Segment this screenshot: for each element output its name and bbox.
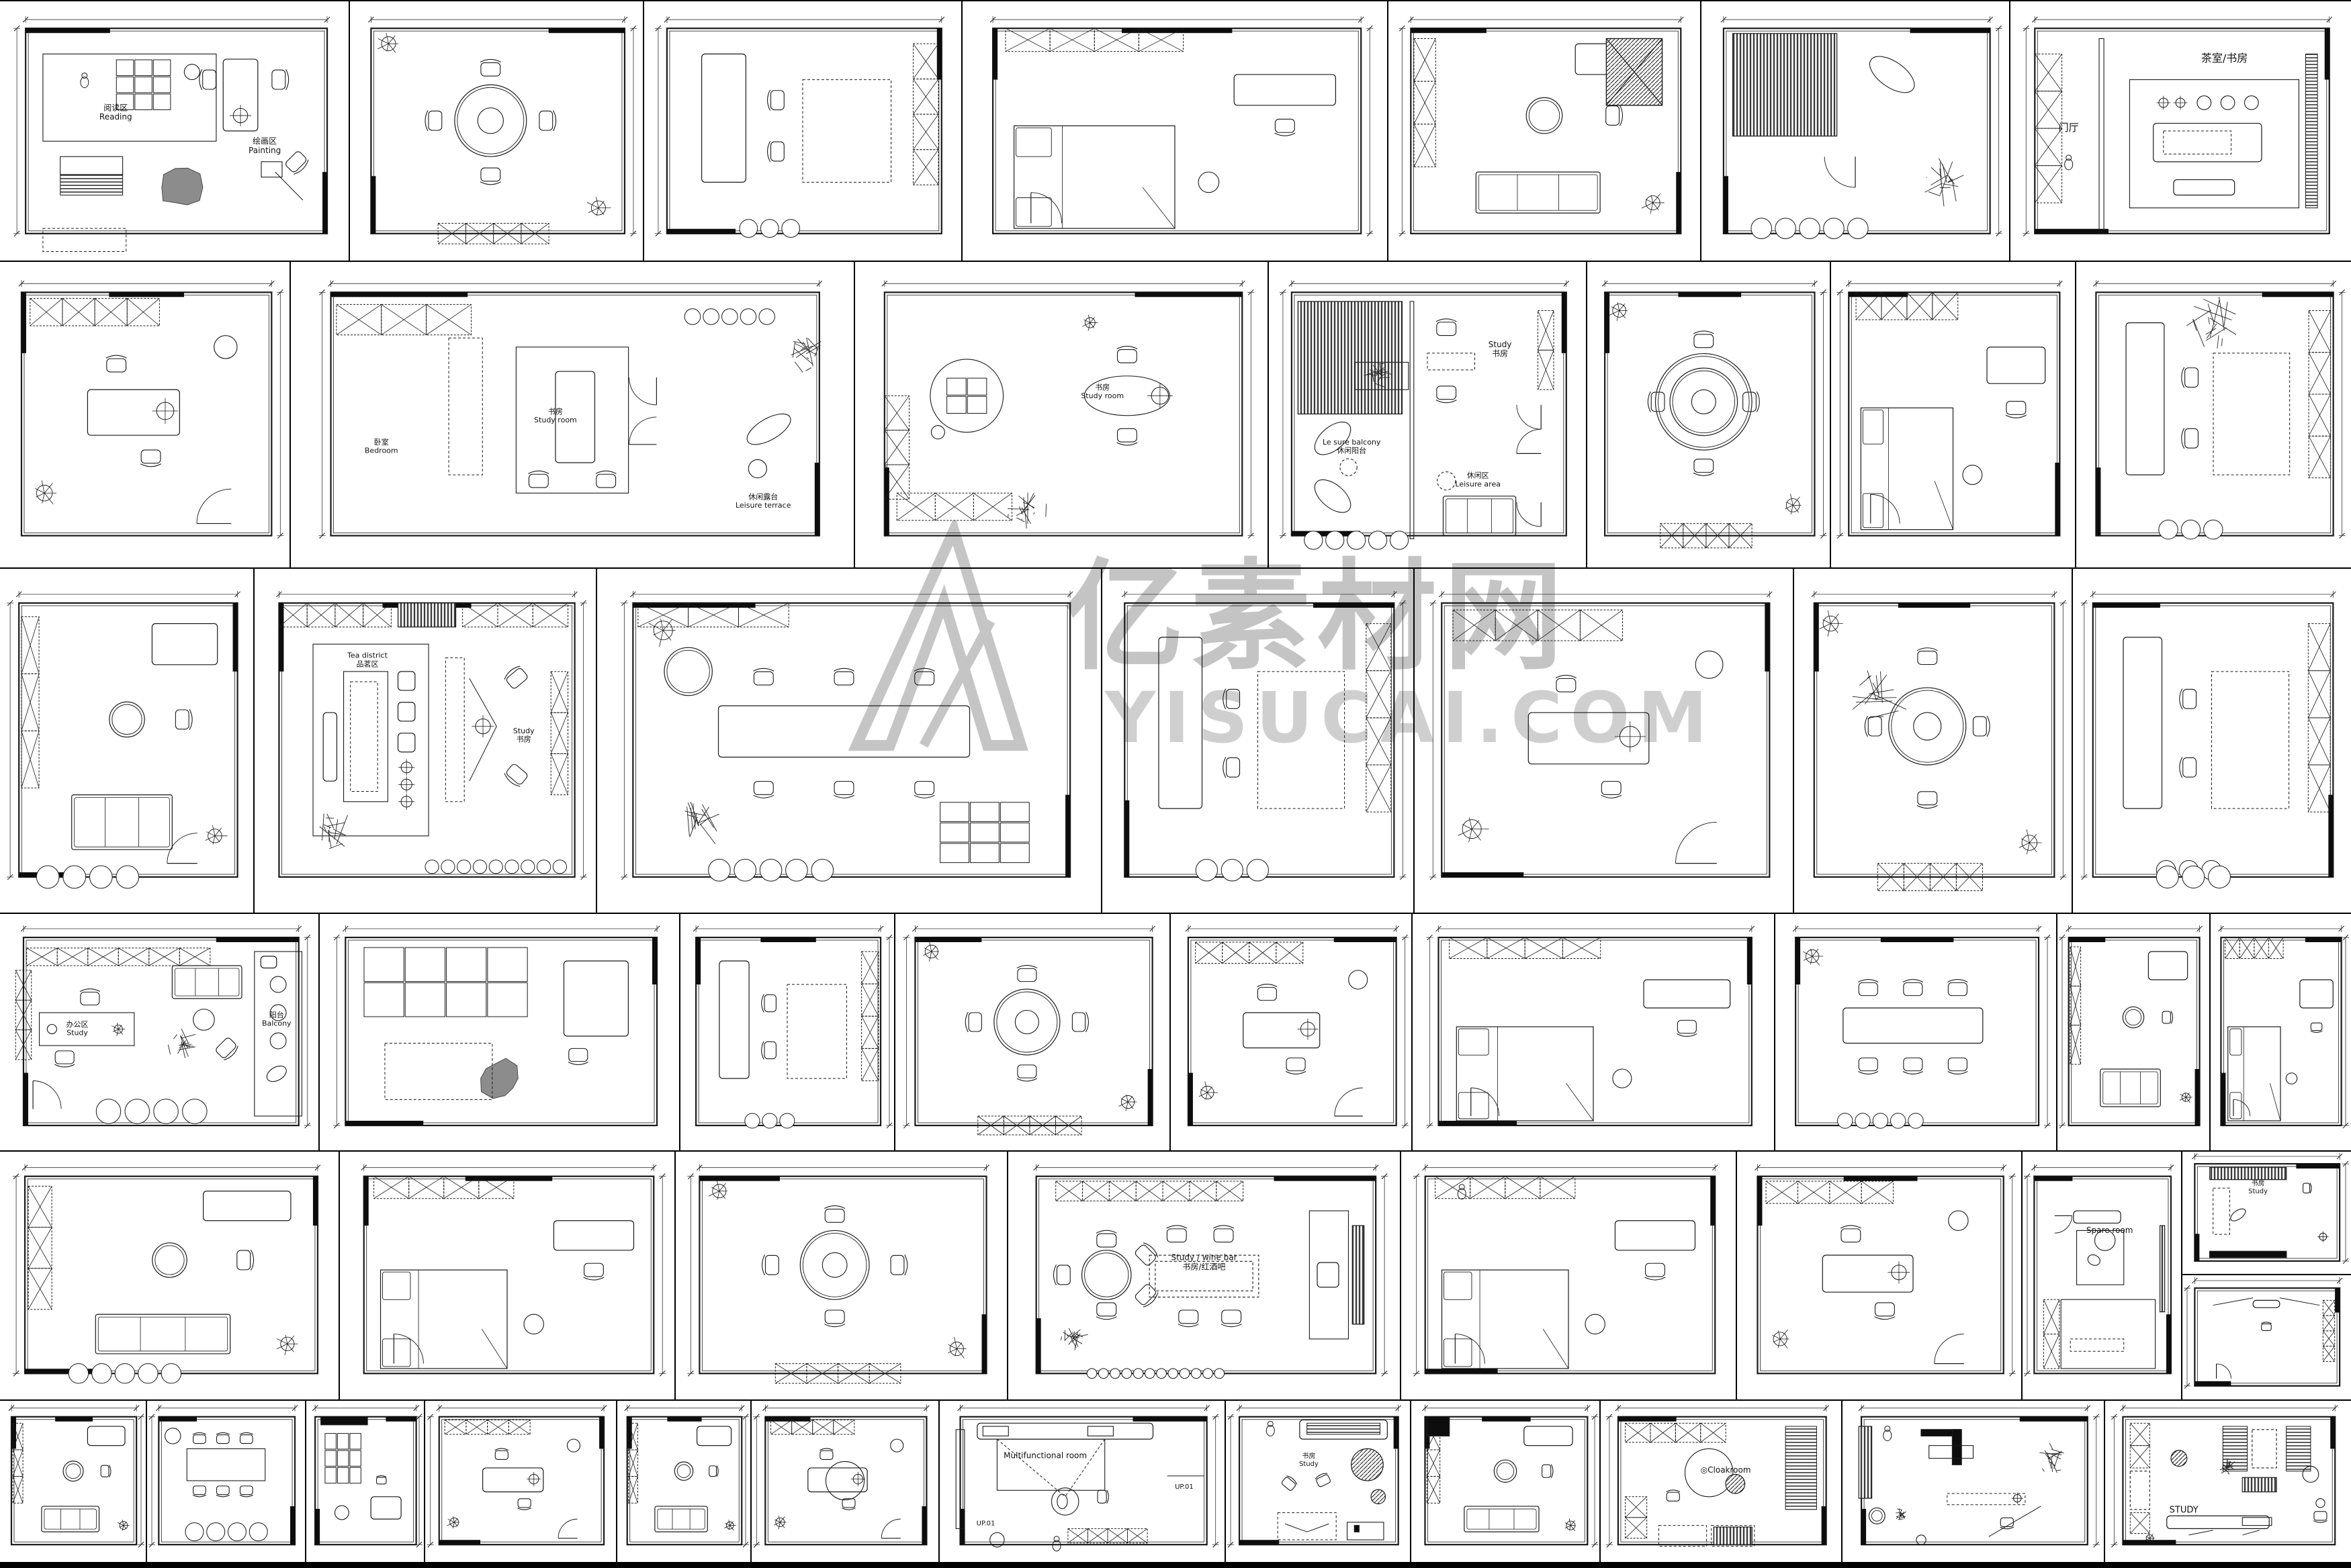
grid-subrow-separator [2182,1274,2351,1275]
floor-plan-cell-r4c4 [896,914,1169,1149]
floor-plan-drawing: 书房Study [2183,1152,2350,1273]
floor-plan-drawing [645,3,961,259]
floor-plan-drawing: 书房Study [1227,1401,1409,1561]
grid-column-separator [596,567,597,913]
floor-plan-drawing: 卧室Bedroom书房Study room休闲露台Leisure terrace [292,262,853,566]
floor-plan-cell-r3c7 [2074,569,2350,911]
floor-plan-cell-r4c7 [1776,914,2055,1149]
plan-label: 阅读区Reading [99,103,132,122]
floor-plan-cell-r2c6 [1832,262,2074,566]
floor-plan-cell-r5c7: Spare room [2023,1152,2180,1398]
floor-plan-drawing [1402,1152,1735,1398]
floor-plan-cell-r6c4 [426,1401,615,1561]
floor-plan-drawing [1832,262,2074,566]
floor-plan-cell-r6c6 [752,1401,938,1561]
floor-plan-cell-r4c1: 办公区Study阳台Balcony [1,914,318,1149]
floor-plan-cell-r6c10: ◎Cloakroom [1601,1401,1840,1561]
grid-column-separator [1700,1,1701,261]
floor-plan-drawing: Tea district品茗区Study书房 [255,569,595,911]
grid-column-separator [1410,1399,1411,1562]
plan-label: 书房Study [1299,1452,1319,1469]
sheet-top-border [0,0,2351,1]
plan-label: Spare room [2086,1226,2133,1235]
floor-plan-drawing: ◎Cloakroom [1601,1401,1840,1561]
grid-column-separator [2009,1,2010,261]
floor-plan-cell-r3c3 [598,569,1100,911]
floor-plan-cell-r2c7 [2077,262,2350,566]
plan-label: 茶室/书房 [2201,52,2248,64]
grid-column-separator [616,1399,617,1562]
floor-plan-drawing: Study书房Le sure balcony休闲阳台休闲区Leisure are… [1270,262,1585,566]
floor-plan-cell-r3c1 [1,569,253,911]
plan-label: Study书房 [513,727,535,744]
grid-column-separator [894,913,895,1150]
grid-column-separator [2104,1399,2105,1562]
floor-plan-cell-r4c9 [2211,914,2350,1149]
floor-plan-cell-r4c2 [320,914,678,1149]
grid-column-separator [1411,913,1413,1150]
floor-plan-drawing: Study / wine bar书房/红酒吧 [1009,1152,1399,1398]
grid-column-separator [1841,1399,1843,1562]
floor-plan-drawing [1795,569,2071,911]
grid-column-separator [2021,1150,2023,1399]
plan-label: ◎Cloakroom [1701,1465,1751,1475]
floor-plan-drawing [1389,3,1699,259]
grid-column-separator [1225,1399,1226,1562]
floor-plan-drawing [1413,914,1773,1149]
floor-plan-drawing: Spare room [2023,1152,2180,1398]
floor-plan-drawing [752,1401,938,1561]
floor-plan-cell-r6c11 [1843,1401,2103,1561]
floor-plan-cell-r1c7: 茶室/书房门厅 [2011,3,2350,259]
plan-label: UP.01 [1175,1483,1194,1491]
grid-row-separator [0,1562,2351,1563]
floor-plan-cell-r5c6 [1738,1152,2021,1398]
plan-label: Study书房 [1489,340,1512,359]
floor-plan-drawing [618,1401,750,1561]
floor-plan-cell-r4c6 [1413,914,1773,1149]
floor-plan-drawing [1,262,289,566]
grid-column-separator [290,261,291,567]
plan-label: Multifunctional room [1004,1451,1087,1461]
floor-plan-cell-r1c6 [1702,3,2008,259]
grid-column-separator [1586,261,1587,567]
plan-label: 书房Study room [1081,383,1124,400]
floor-plan-drawing [1415,569,1792,911]
grid-column-separator [339,1150,340,1399]
floor-plan-drawing [1171,914,1411,1149]
floor-plan-cell-r5c9 [2183,1276,2350,1398]
floor-plan-drawing: 阅读区Reading绘画区Painting [1,3,348,259]
plan-label: STUDY [2170,1506,2199,1516]
floor-plan-cell-r1c4 [963,3,1386,259]
grid-column-separator [424,1399,425,1562]
floor-plan-cell-r3c4 [1103,569,1413,911]
floor-plan-drawing [1702,3,2008,259]
floor-plan-cell-r2c4: Study书房Le sure balcony休闲阳台休闲区Leisure are… [1270,262,1585,566]
floor-plan-drawing [681,914,893,1149]
floor-plan-cell-r5c2 [341,1152,674,1398]
plan-label: Tea district品茗区 [347,651,388,669]
grid-column-separator [253,567,255,913]
grid-column-separator [318,913,320,1150]
floor-plan-cell-r6c12: STUDY [2106,1401,2350,1561]
grid-column-separator [1400,1150,1401,1399]
floor-plan-cell-r6c1 [1,1401,145,1561]
floor-plan-cell-r6c2 [148,1401,304,1561]
cad-floor-plan-sheet: 亿素材网 YISUCAI.COM 阅读区Reading绘画区Painting茶室… [0,0,2351,1568]
floor-plan-cell-r3c2: Tea district品茗区Study书房 [255,569,595,911]
floor-plan-cell-r2c1 [1,262,289,566]
floor-plan-drawing: 书房Study room [856,262,1267,566]
floor-plan-drawing [2077,262,2350,566]
floor-plan-cell-r6c9 [1412,1401,1599,1561]
grid-column-separator [938,1399,940,1562]
floor-plan-drawing [320,914,678,1149]
floor-plan-drawing [426,1401,615,1561]
floor-plan-cell-r2c3: 书房Study room [856,262,1267,566]
floor-plan-drawing [1103,569,1413,911]
plan-label: UP.01 [977,1520,995,1528]
floor-plan-cell-r4c5 [1171,914,1411,1149]
floor-plan-drawing [2211,914,2350,1149]
floor-plan-drawing [676,1152,1006,1398]
floor-plan-drawing: 茶室/书房门厅 [2011,3,2350,259]
grid-column-separator [305,1399,306,1562]
floor-plan-cell-r2c2: 卧室Bedroom书房Study room休闲露台Leisure terrace [292,262,853,566]
floor-plan-cell-r3c5 [1415,569,1792,911]
grid-column-separator [643,1,644,261]
grid-column-separator [1774,913,1775,1150]
floor-plan-cell-r1c1: 阅读区Reading绘画区Painting [1,3,348,259]
floor-plan-cell-r5c1 [1,1152,338,1398]
floor-plan-drawing [1588,262,1829,566]
floor-plan-drawing [1,1152,338,1398]
floor-plan-cell-r6c7: Multifunctional roomUP.01UP.01 [940,1401,1224,1561]
floor-plan-drawing [1,569,253,911]
floor-plan-drawing [598,569,1100,911]
grid-column-separator [2075,261,2076,567]
floor-plan-cell-r6c8: 书房Study [1227,1401,1409,1561]
floor-plan-drawing [1412,1401,1599,1561]
floor-plan-cell-r2c5 [1588,262,1829,566]
floor-plan-cell-r1c3 [645,3,961,259]
floor-plan-drawing [1738,1152,2021,1398]
grid-column-separator [1169,913,1171,1150]
floor-plan-drawing [351,3,642,259]
floor-plan-drawing [2183,1276,2350,1398]
floor-plan-cell-r6c5 [618,1401,750,1561]
grid-column-separator [1736,1150,1737,1399]
plan-label: 绘画区Painting [249,136,281,155]
grid-column-separator [750,1399,752,1562]
floor-plan-cell-r1c5 [1389,3,1699,259]
plan-label: 书房Study room [534,408,577,425]
floor-plan-drawing [307,1401,423,1561]
plan-label: 卧室Bedroom [365,437,398,455]
grid-column-separator [146,1399,147,1562]
floor-plan-drawing [896,914,1169,1149]
floor-plan-drawing [341,1152,674,1398]
floor-plan-cell-r5c4: Study / wine bar书房/红酒吧 [1009,1152,1399,1398]
floor-plan-cell-r5c8: 书房Study [2183,1152,2350,1273]
floor-plan-cell-r6c3 [307,1401,423,1561]
grid-column-separator [1599,1399,1601,1562]
plan-label: 门厅 [2059,122,2079,134]
plan-label: 休闲露台Leisure terrace [736,492,791,510]
grid-column-separator [1268,261,1269,567]
grid-column-separator [854,261,855,567]
grid-column-separator [349,1,350,261]
grid-column-separator [1007,1150,1008,1399]
floor-plan-drawing: Multifunctional roomUP.01UP.01 [940,1401,1224,1561]
floor-plan-drawing [2074,569,2350,911]
plan-label: 办公区Study [66,1020,89,1037]
grid-column-separator [2056,913,2057,1150]
floor-plan-cell-r4c8 [2058,914,2209,1149]
floor-plan-cell-r5c3 [676,1152,1006,1398]
floor-plan-drawing [1,1401,145,1561]
grid-column-separator [679,913,680,1150]
floor-plan-drawing [148,1401,304,1561]
grid-column-separator [1101,567,1102,913]
floor-plan-drawing [2058,914,2209,1149]
floor-plan-cell-r5c5 [1402,1152,1735,1398]
grid-column-separator [674,1150,676,1399]
floor-plan-cell-r1c2 [351,3,642,259]
floor-plan-drawing [963,3,1386,259]
floor-plan-drawing: STUDY [2106,1401,2350,1561]
plan-label: Study / wine bar书房/红酒吧 [1171,1252,1237,1271]
floor-plan-drawing [1776,914,2055,1149]
plan-label: 阳台Balcony [262,1010,292,1028]
plan-label: 休闲区Leisure area [1455,471,1501,489]
grid-column-separator [1830,261,1831,567]
grid-column-separator [2072,567,2073,913]
grid-column-separator [1793,567,1794,913]
grid-column-separator [2209,913,2211,1150]
floor-plan-drawing: 办公区Study阳台Balcony [1,914,318,1149]
grid-column-separator [1387,1,1388,261]
plan-label: 书房Study [2248,1179,2268,1196]
floor-plan-cell-r4c3 [681,914,893,1149]
grid-column-separator [1413,567,1415,913]
grid-column-separator [961,1,963,261]
floor-plan-drawing [1843,1401,2103,1561]
floor-plan-cell-r3c6 [1795,569,2071,911]
